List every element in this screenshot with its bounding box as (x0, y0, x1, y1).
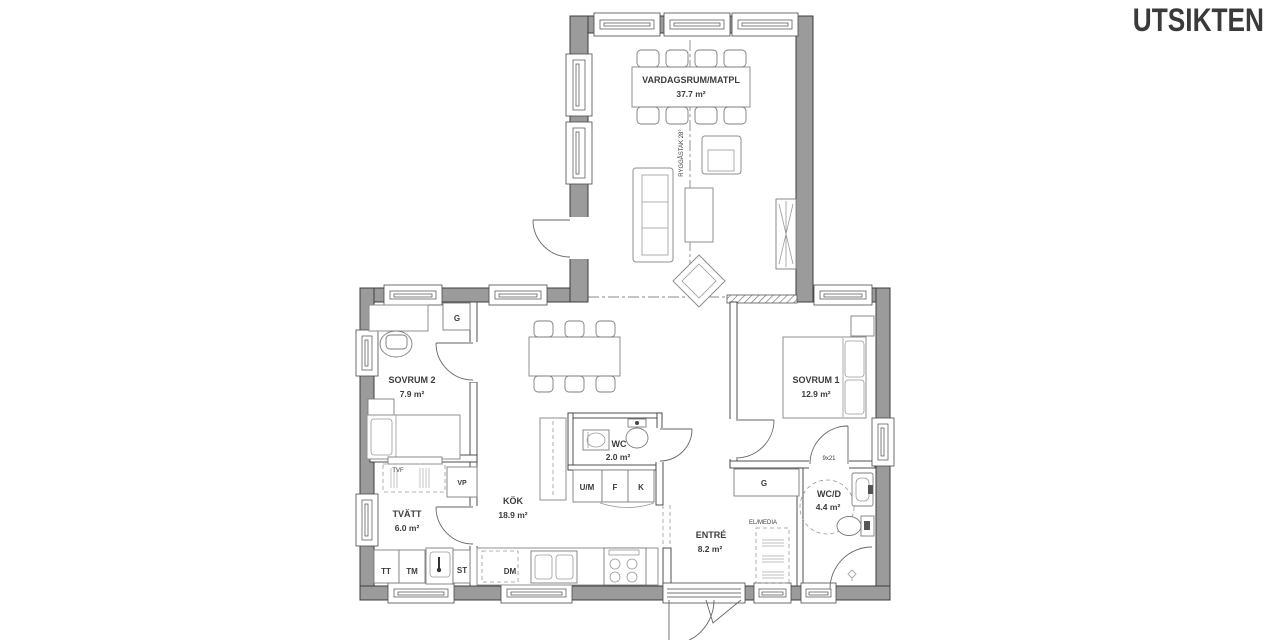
section-wall-hatched (727, 295, 797, 303)
desk (369, 305, 428, 331)
dining-table (632, 67, 750, 107)
kitchen-table (529, 337, 620, 376)
single-bed (367, 415, 460, 459)
sovrum1-furniture (783, 316, 874, 418)
label-g2: G (761, 479, 767, 488)
label-wcd: WC/D (817, 489, 841, 499)
label-st: ST (457, 566, 467, 575)
label-tvatt-area: 6.0 m² (395, 523, 420, 533)
exterior-walls (360, 16, 890, 600)
sovrum1-door (736, 420, 774, 458)
label-vp: VP (457, 480, 467, 487)
label-wc: WC (612, 439, 627, 449)
label-vardagsrum-area: 37.7 m² (676, 89, 705, 99)
label-f: F (613, 483, 618, 492)
shower-drain (848, 570, 856, 578)
label-dm: DM (504, 567, 517, 576)
floorplan-canvas: VARDAGSRUM/MATPL 37.7 m² RYGGÅSTAK 28° S… (0, 0, 1280, 640)
coffee-table (685, 188, 713, 242)
label-ridge: RYGGÅSTAK 28° (678, 129, 685, 177)
tvatt-door (436, 507, 473, 544)
kitchen-fixtures (477, 321, 658, 585)
wc-door (660, 429, 692, 461)
livingroom-furniture (632, 50, 796, 307)
sofa (633, 168, 673, 262)
label-wc-area: 2.0 m² (606, 452, 631, 462)
livingroom-exterior-door (533, 220, 570, 257)
label-door-size: 9x21 (822, 456, 836, 462)
label-wcd-area: 4.4 m² (816, 502, 841, 512)
bedside-table (368, 399, 394, 415)
label-sovrum2-area: 7.9 m² (400, 389, 425, 399)
label-tm: TM (406, 567, 418, 576)
label-sovrum1-area: 12.9 m² (801, 389, 830, 399)
label-tt: TT (381, 567, 391, 576)
label-entre-area: 8.2 m² (698, 544, 723, 554)
entrance-door (669, 600, 741, 640)
label-k: K (638, 483, 644, 492)
wcd-toilet (837, 517, 861, 536)
kitchen-sink (531, 551, 577, 583)
label-um: U/M (580, 483, 595, 492)
label-tvatt: TVÄTT (393, 509, 422, 519)
label-el-media: EL/MEDIA (749, 520, 777, 526)
tvf-bench (388, 457, 442, 464)
label-g1: G (454, 314, 460, 323)
wc-toilet (626, 428, 648, 448)
label-vardagsrum: VARDAGSRUM/MATPL (642, 75, 740, 85)
floorplan-page: UTSIKTEN (0, 0, 1280, 640)
sovrum2-door (436, 343, 473, 380)
tvatt-fixtures (374, 457, 477, 584)
bedside-table (851, 316, 874, 336)
fireplace (673, 255, 725, 307)
label-entre: ENTRÉ (696, 530, 727, 540)
kitchen-hall-opening (663, 505, 670, 548)
label-kok-area: 18.9 m² (498, 510, 527, 520)
label-tvf: TVF (392, 468, 404, 474)
label-kok: KÖK (503, 496, 524, 506)
label-sovrum2: SOVRUM 2 (388, 375, 435, 385)
label-sovrum1: SOVRUM 1 (792, 375, 839, 385)
